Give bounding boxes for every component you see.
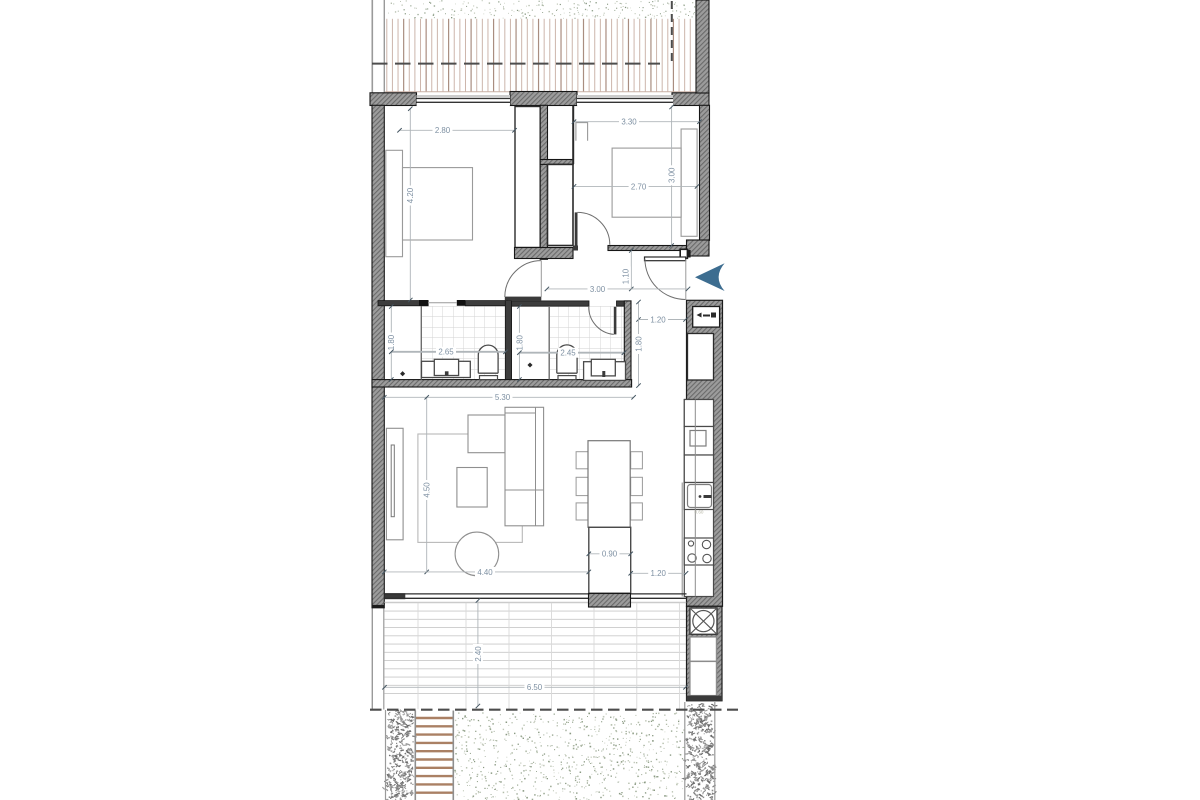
svg-text:2.70: 2.70 (631, 182, 647, 191)
svg-text:6.50: 6.50 (527, 683, 543, 692)
svg-text:4.50: 4.50 (423, 482, 432, 498)
svg-text:2.65: 2.65 (438, 348, 454, 357)
svg-text:1.80: 1.80 (387, 334, 396, 350)
svg-text:1.10: 1.10 (622, 268, 631, 284)
svg-text:2.40: 2.40 (474, 646, 483, 662)
svg-text:3.00: 3.00 (668, 167, 677, 183)
svg-text:4.20: 4.20 (406, 187, 415, 203)
svg-text:1.20: 1.20 (650, 315, 666, 324)
svg-text:0.90: 0.90 (602, 550, 618, 559)
svg-text:3.30: 3.30 (621, 118, 637, 127)
svg-text:3.00: 3.00 (590, 285, 606, 294)
svg-text:4.40: 4.40 (477, 568, 493, 577)
svg-text:2.45: 2.45 (560, 349, 576, 358)
svg-text:2.80: 2.80 (435, 126, 451, 135)
svg-text:0.60: 0.60 (695, 510, 704, 515)
svg-text:1.80: 1.80 (515, 335, 524, 351)
svg-text:5.30: 5.30 (495, 393, 511, 402)
svg-text:1.20: 1.20 (651, 569, 667, 578)
svg-text:1.80: 1.80 (634, 336, 643, 352)
